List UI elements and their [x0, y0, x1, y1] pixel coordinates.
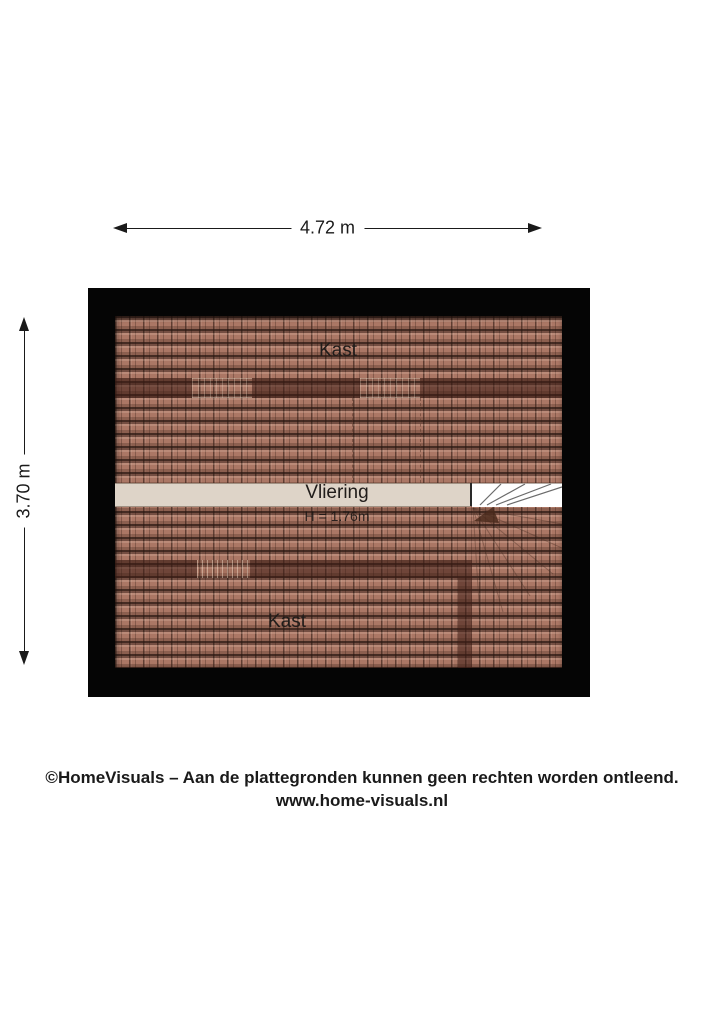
height-dimension-label: 3.70 m: [14, 454, 35, 527]
room-label-vliering: Vliering: [305, 482, 368, 504]
arrow-down-icon: [19, 651, 29, 665]
dashed-line: [352, 398, 353, 483]
wall-outline: Kast Vliering H = 1.76m Kast: [88, 288, 590, 697]
footer-website: www.home-visuals.nl: [0, 789, 724, 812]
beam-gap: [360, 378, 420, 398]
floor-plan-page: 4.72 m 3.70 m: [0, 0, 724, 1024]
roof-beam-vertical: [458, 578, 472, 668]
roof-hatch: [197, 560, 250, 578]
footer: ©HomeVisuals – Aan de plattegronden kunn…: [0, 766, 724, 812]
width-dimension-label: 4.72 m: [291, 218, 364, 239]
roof-beam-bottom-right: [250, 560, 472, 578]
arrow-left-icon: [113, 223, 127, 233]
roof-tile-area: Kast Vliering H = 1.76m Kast: [115, 316, 562, 668]
room-label-kast-top: Kast: [319, 340, 357, 362]
roof-beam-bottom-left: [115, 560, 197, 578]
arrow-right-icon: [528, 223, 542, 233]
width-dimension: 4.72 m: [113, 221, 542, 236]
room-label-kast-bottom: Kast: [268, 611, 306, 633]
staircase: [472, 483, 562, 507]
vliering-floor-strip: [115, 483, 470, 507]
arrow-up-icon: [19, 317, 29, 331]
roof-beam-top-left: [115, 378, 192, 398]
beam-gap: [192, 378, 252, 398]
height-dimension: 3.70 m: [17, 317, 32, 665]
roof-beam-top-right: [420, 378, 562, 398]
dashed-line: [420, 398, 421, 483]
stair-direction-arrow-icon: [474, 507, 499, 523]
footer-disclaimer: ©HomeVisuals – Aan de plattegronden kunn…: [0, 766, 724, 789]
roof-beam-top-middle: [252, 378, 360, 398]
ceiling-height-label: H = 1.76m: [305, 508, 370, 524]
